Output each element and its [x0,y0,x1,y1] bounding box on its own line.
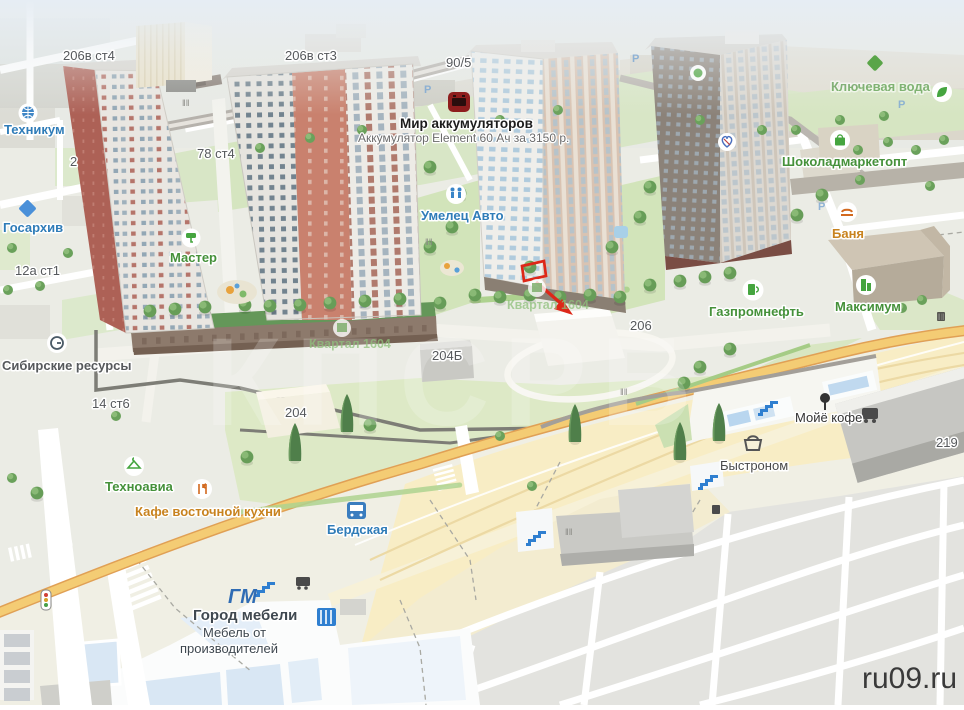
svg-text:P: P [898,99,905,111]
svg-text:‖‖: ‖‖ [937,312,944,322]
svg-text:‖‖: ‖‖ [182,98,189,108]
svg-text:206в ст3: 206в ст3 [285,48,337,63]
svg-text:Максимум: Максимум [835,299,901,314]
svg-text:90/5: 90/5 [446,55,471,70]
svg-text:78 ст4: 78 ст4 [197,146,235,161]
svg-text:206в ст4: 206в ст4 [63,48,115,63]
svg-text:Кафе восточной кухни: Кафе восточной кухни [135,504,281,519]
svg-text:P: P [818,201,825,213]
svg-text:‖‖: ‖‖ [565,527,572,537]
svg-text:206: 206 [630,318,652,333]
svg-text:Техникум: Техникум [4,122,65,137]
svg-text:Техноавиа: Техноавиа [105,479,174,494]
svg-text:‖‖: ‖‖ [620,387,627,397]
svg-text:Аккумулятор Element 60 Ач за 3: Аккумулятор Element 60 Ач за 3150 р. [358,131,569,145]
svg-text:ГМ: ГМ [228,586,258,608]
svg-text:Квартал 1604: Квартал 1604 [507,298,589,312]
svg-text:Мир аккумуляторов: Мир аккумуляторов [400,116,533,131]
svg-text:204: 204 [285,405,307,420]
svg-text:12а ст1: 12а ст1 [15,263,60,278]
svg-text:Быстроном: Быстроном [720,458,788,473]
svg-text:14 ст6: 14 ст6 [92,396,130,411]
svg-text:Госархив: Госархив [3,220,63,235]
svg-text:Шоколадмаркетопт: Шоколадмаркетопт [782,154,907,169]
svg-text:Мастер: Мастер [170,250,217,265]
svg-text:ru09.ru: ru09.ru [862,662,957,695]
svg-text:Баня: Баня [832,226,864,241]
svg-text:‖‖: ‖‖ [425,237,432,247]
svg-text:КПСРБ: КПСРБ [205,313,705,452]
svg-text:Умелец Авто: Умелец Авто [421,208,504,223]
svg-text:Газпромнефть: Газпромнефть [709,304,804,319]
svg-text:Мойё кофе: Мойё кофе [795,410,862,425]
svg-text:219: 219 [936,435,958,450]
svg-text:Мебель от: Мебель от [203,625,266,640]
svg-text:производителей: производителей [180,641,278,656]
svg-text:P: P [632,53,639,65]
svg-text:Ключевая вода: Ключевая вода [831,79,931,94]
svg-text:Город мебели: Город мебели [193,607,297,624]
svg-text:204Б: 204Б [432,348,462,363]
svg-text:2: 2 [70,154,77,169]
svg-text:Квартал 1604: Квартал 1604 [309,337,391,351]
svg-text:P: P [424,84,431,96]
svg-text:Сибирские ресурсы: Сибирские ресурсы [2,358,131,373]
svg-text:Бердская: Бердская [327,522,388,537]
